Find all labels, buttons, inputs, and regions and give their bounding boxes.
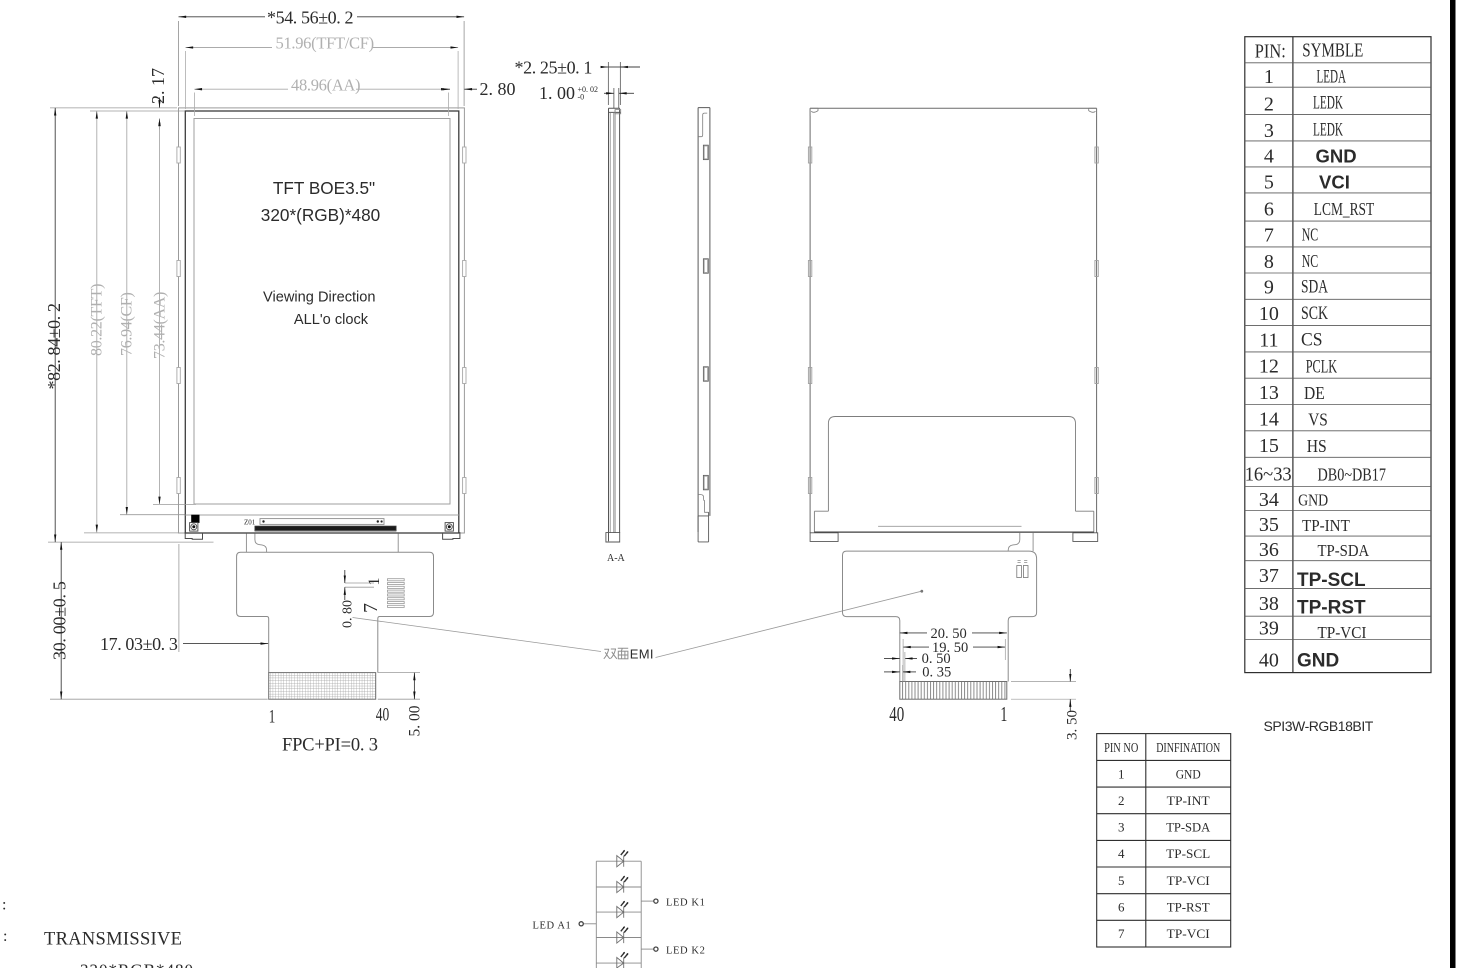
svg-text:2. 80: 2. 80 xyxy=(480,79,516,99)
svg-text:LED A1: LED A1 xyxy=(533,921,572,932)
svg-text:PIN NO: PIN NO xyxy=(1104,741,1138,756)
svg-text:36: 36 xyxy=(1259,539,1279,561)
svg-text:GND: GND xyxy=(1298,491,1328,510)
svg-text:LCM_RST: LCM_RST xyxy=(1314,199,1374,219)
svg-text:DB0~DB17: DB0~DB17 xyxy=(1318,465,1387,485)
svg-text:TP-SDA: TP-SDA xyxy=(1166,820,1211,835)
svg-text:14: 14 xyxy=(1259,409,1279,431)
svg-text:TP-SDA: TP-SDA xyxy=(1318,541,1370,560)
svg-text:12: 12 xyxy=(1259,356,1279,378)
svg-text:6: 6 xyxy=(1118,900,1125,915)
svg-text:GND: GND xyxy=(1316,146,1357,167)
svg-text:Viewing Direction: Viewing Direction xyxy=(263,289,375,305)
svg-text:17. 03±0. 3: 17. 03±0. 3 xyxy=(100,634,178,654)
svg-text:320*RGB*480: 320*RGB*480 xyxy=(80,961,194,968)
svg-text:1: 1 xyxy=(1264,66,1274,88)
svg-text:TFT BOE3.5": TFT BOE3.5" xyxy=(273,178,375,198)
svg-text:1: 1 xyxy=(1118,767,1125,782)
svg-text:40: 40 xyxy=(376,705,390,726)
svg-text:0. 35: 0. 35 xyxy=(922,664,951,680)
svg-text:TRANSMISSIVE: TRANSMISSIVE xyxy=(44,930,182,950)
svg-text:34: 34 xyxy=(1259,489,1279,511)
svg-text:11: 11 xyxy=(1259,330,1278,352)
svg-text:38: 38 xyxy=(1259,593,1279,615)
svg-text:LEDK: LEDK xyxy=(1313,93,1343,114)
svg-text:40: 40 xyxy=(1259,650,1279,672)
svg-text:51.96(TFT/CF): 51.96(TFT/CF) xyxy=(276,34,374,53)
svg-text:*82. 84±0. 2: *82. 84±0. 2 xyxy=(44,303,64,389)
svg-text:5: 5 xyxy=(1264,172,1274,194)
svg-text:4: 4 xyxy=(1264,146,1274,168)
svg-text:73.44(AA): 73.44(AA) xyxy=(152,292,169,359)
svg-text:2. 17: 2. 17 xyxy=(148,68,168,104)
svg-text:TP-RST: TP-RST xyxy=(1297,598,1366,619)
svg-text:37: 37 xyxy=(1259,565,1279,587)
svg-text:GND: GND xyxy=(1176,767,1201,782)
svg-text:ALL'o clock: ALL'o clock xyxy=(294,312,369,328)
svg-text:VS: VS xyxy=(1308,410,1328,430)
svg-text::: : xyxy=(2,897,6,914)
svg-text:PIN:: PIN: xyxy=(1255,41,1286,63)
svg-text:TP-SCL: TP-SCL xyxy=(1166,846,1210,861)
svg-text:NC: NC xyxy=(1302,251,1319,271)
svg-text:16~33: 16~33 xyxy=(1245,464,1292,486)
svg-text:A-A: A-A xyxy=(607,553,626,564)
svg-text:7: 7 xyxy=(1118,926,1125,941)
svg-text:FPC+PI=0. 3: FPC+PI=0. 3 xyxy=(282,736,378,756)
svg-text:1: 1 xyxy=(366,578,383,586)
svg-text:40: 40 xyxy=(889,702,904,726)
svg-text:LEDK: LEDK xyxy=(1313,120,1343,141)
svg-text:3: 3 xyxy=(1264,120,1274,142)
svg-text:80.22(TFT): 80.22(TFT) xyxy=(89,284,106,356)
svg-text:EMI: EMI xyxy=(630,647,654,662)
svg-text:9: 9 xyxy=(1264,277,1274,299)
svg-text:*54. 56±0. 2: *54. 56±0. 2 xyxy=(267,7,353,27)
svg-text:TP-INT: TP-INT xyxy=(1167,793,1210,808)
svg-text:1: 1 xyxy=(269,707,276,728)
svg-text:1: 1 xyxy=(1000,702,1007,726)
svg-text:320*(RGB)*480: 320*(RGB)*480 xyxy=(261,205,380,225)
svg-text:Z01: Z01 xyxy=(244,519,256,527)
svg-text:TP-VCI: TP-VCI xyxy=(1167,926,1210,941)
svg-text:LED K1: LED K1 xyxy=(666,898,705,909)
svg-text:8: 8 xyxy=(1264,251,1274,273)
svg-text:TP-SCL: TP-SCL xyxy=(1297,570,1366,591)
svg-text:-0: -0 xyxy=(578,93,585,102)
svg-text:HS: HS xyxy=(1307,436,1327,456)
svg-text:4: 4 xyxy=(1118,846,1125,861)
svg-text:6: 6 xyxy=(1264,199,1274,221)
svg-text:10: 10 xyxy=(1259,303,1279,325)
svg-text:48.96(AA): 48.96(AA) xyxy=(291,75,360,94)
svg-text:30. 00±0. 5: 30. 00±0. 5 xyxy=(50,581,70,660)
svg-text:TP-VCI: TP-VCI xyxy=(1318,623,1367,642)
svg-text:VCI: VCI xyxy=(1319,172,1350,193)
svg-text:1. 00: 1. 00 xyxy=(539,83,575,103)
svg-text:DE: DE xyxy=(1304,383,1325,403)
svg-text:LEDA: LEDA xyxy=(1317,67,1347,88)
svg-text:15: 15 xyxy=(1259,435,1279,457)
svg-text::: : xyxy=(3,928,7,945)
svg-text:5: 5 xyxy=(1118,873,1125,888)
svg-text:76.94(CF): 76.94(CF) xyxy=(119,292,136,356)
svg-text:CS: CS xyxy=(1301,331,1323,351)
svg-text:LED K2: LED K2 xyxy=(666,946,705,957)
svg-text:3: 3 xyxy=(1118,820,1125,835)
svg-text:SYMBLE: SYMBLE xyxy=(1302,40,1363,62)
svg-text:7: 7 xyxy=(360,603,382,613)
svg-text:*2. 25±0. 1: *2. 25±0. 1 xyxy=(515,58,592,78)
svg-text:GND: GND xyxy=(1297,651,1339,672)
svg-text:PCLK: PCLK xyxy=(1306,358,1338,378)
svg-text:13: 13 xyxy=(1259,382,1279,404)
svg-text:DINFINATION: DINFINATION xyxy=(1156,741,1220,756)
svg-text:5. 00: 5. 00 xyxy=(407,705,424,736)
svg-text:SCK: SCK xyxy=(1301,304,1328,324)
svg-text:0. 80: 0. 80 xyxy=(341,600,356,628)
svg-text:NC: NC xyxy=(1302,225,1319,245)
svg-text:2: 2 xyxy=(1264,94,1274,116)
svg-text:7: 7 xyxy=(1264,225,1274,247)
svg-text:TP-RST: TP-RST xyxy=(1167,900,1210,915)
svg-text:SDA: SDA xyxy=(1301,278,1328,298)
svg-text:2: 2 xyxy=(1118,793,1125,808)
svg-text:39: 39 xyxy=(1259,618,1279,640)
svg-text:TP-INT: TP-INT xyxy=(1302,516,1350,535)
svg-text:3. 50: 3. 50 xyxy=(1065,710,1081,740)
svg-text:TP-VCI: TP-VCI xyxy=(1167,873,1210,888)
svg-text:35: 35 xyxy=(1259,514,1279,536)
svg-text:SPI3W-RGB18BIT: SPI3W-RGB18BIT xyxy=(1264,718,1374,734)
